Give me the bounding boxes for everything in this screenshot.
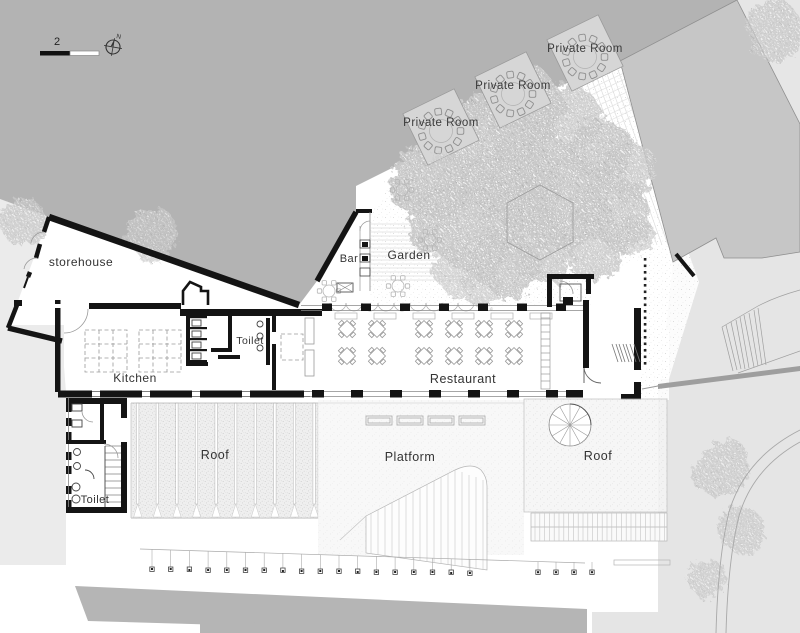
svg-text:Toilet: Toilet xyxy=(81,494,110,506)
svg-text:storehouse: storehouse xyxy=(49,255,113,269)
svg-text:Platform: Platform xyxy=(385,450,436,464)
svg-text:Private Room: Private Room xyxy=(547,43,623,55)
svg-text:Private Room: Private Room xyxy=(475,80,551,92)
svg-text:Restaurant: Restaurant xyxy=(430,372,496,386)
svg-text:Toilet: Toilet xyxy=(236,335,264,347)
svg-text:Garden: Garden xyxy=(387,248,430,262)
svg-text:Private Room: Private Room xyxy=(403,117,479,129)
svg-text:Roof: Roof xyxy=(201,448,229,462)
svg-text:2: 2 xyxy=(54,36,60,48)
svg-text:Bar: Bar xyxy=(340,253,359,265)
svg-text:Roof: Roof xyxy=(584,449,612,463)
svg-text:Kitchen: Kitchen xyxy=(113,371,157,385)
